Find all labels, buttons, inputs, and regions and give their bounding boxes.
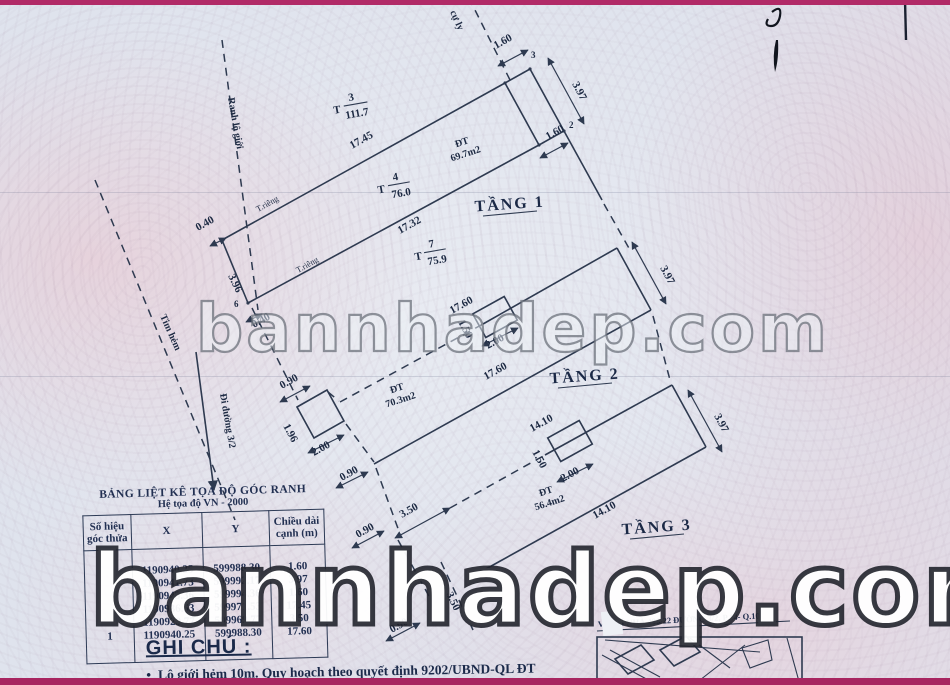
- top-edge-label: cự ly: [447, 9, 465, 32]
- dim-3-96: 3.96: [225, 272, 244, 295]
- floor2-landing-hatch: [297, 390, 344, 438]
- col-header-len: Chiều dài cạnh (m): [269, 509, 325, 546]
- dim-3-50-b: 3.50: [443, 590, 462, 613]
- scanned-survey-drawing: 17.45 17.32 3.96 1.60 1.60 3.97 0.40 0.4…: [0, 0, 950, 685]
- dim-3-50-a: 3.50: [398, 501, 421, 521]
- floor2-dim-lines: [280, 242, 666, 488]
- dim-17-60-top: 17.60: [448, 294, 476, 317]
- scan-edge-stripe-bottom: [0, 678, 950, 685]
- lot-7-label: T 7 75.9: [412, 236, 449, 270]
- dim-3-97-f2: 3.97: [657, 264, 677, 287]
- dim-3-97-f1: 3.97: [569, 80, 589, 103]
- alley-boundary-line: [222, 40, 258, 310]
- floor3-title: TẦNG 3: [621, 515, 692, 539]
- floor2-title: TẦNG 2: [549, 364, 620, 388]
- dim-1-50-f2: 1.50: [455, 318, 475, 341]
- svg-text:3: 3: [347, 91, 355, 104]
- svg-text:76.0: 76.0: [391, 186, 413, 201]
- dim-17-45: 17.45: [348, 129, 376, 152]
- point-6: 6: [234, 299, 239, 309]
- floor2-area-label: ĐT 70.3m2: [381, 379, 417, 410]
- boundary-dashed-lines: [95, 0, 670, 520]
- dim-1-60-top: 1.60: [492, 32, 515, 52]
- svg-text:T: T: [414, 250, 424, 263]
- dim-3-97-f3: 3.97: [711, 412, 731, 435]
- floor1-dim-lines: [210, 50, 584, 322]
- floor2-outline: [297, 248, 651, 534]
- floor3-area-label: ĐT 56.4m2: [530, 482, 566, 513]
- lot-3-label: T 3 111.7: [331, 89, 371, 124]
- dim-17-32: 17.32: [396, 214, 424, 237]
- ink-mark: [767, 0, 906, 72]
- svg-text:7: 7: [428, 238, 436, 251]
- lot-4-label: T 4 76.0: [375, 169, 413, 203]
- wall-label-top: T.riêng: [254, 193, 281, 214]
- floor1-title: TẦNG 1: [474, 192, 545, 216]
- svg-text:75.9: 75.9: [427, 253, 449, 268]
- dim-1-96: 1.96: [280, 422, 300, 445]
- alley-axis-line: [95, 180, 235, 520]
- floor1-outline: [220, 67, 602, 304]
- dim-1-60-bottom: 1.60: [544, 123, 567, 143]
- svg-text:111.7: 111.7: [344, 106, 370, 122]
- dim-0-90-f3a: 0.90: [354, 521, 377, 541]
- dim-0-90-f2a: 0.90: [278, 372, 301, 392]
- dim-2-00-f2a: 2.00: [310, 439, 333, 459]
- dim-1-50-f3: 1.50: [529, 448, 549, 471]
- point-3: 3: [531, 50, 536, 60]
- location-inset-map: VỊ TRÍ NHÀ 488/22 ĐƯỜNG 3/2, P.14- Q.10: [597, 610, 802, 685]
- svg-text:T: T: [332, 104, 342, 117]
- correction-patch: [601, 610, 623, 636]
- alley-axis-label: Tim hẻm: [157, 313, 183, 353]
- to-street-label: Đi đường 3/2: [217, 393, 237, 450]
- col-header-y: Y: [202, 511, 270, 548]
- col-header-x: X: [130, 513, 202, 550]
- dim-2-00-f2b: 2.00: [484, 332, 507, 352]
- floor1-area-label: ĐT 69.7m2: [446, 133, 482, 164]
- dim-2-00-f3: 2.00: [559, 465, 582, 485]
- col-header-id: Số hiệu góc thửa: [83, 515, 132, 551]
- dim-0-90-f2b: 0.90: [338, 464, 361, 484]
- svg-text:4: 4: [392, 171, 400, 184]
- dim-17-60-bottom: 17.60: [482, 360, 510, 383]
- hatch-label: 54a: [531, 98, 542, 108]
- to-street-arrow: [196, 352, 214, 490]
- dim-14-10-bottom: 14.10: [591, 499, 619, 522]
- scan-edge-stripe-top: [0, 0, 950, 5]
- svg-text:T: T: [377, 183, 387, 196]
- notes-block: GHI CHÚ : •Lộ giới hẻm 10m. Quy hoạch th…: [146, 631, 536, 684]
- cell-ids: 1: [84, 550, 135, 664]
- point-2: 2: [569, 120, 574, 130]
- boundary-label: Ranh lộ giới: [225, 97, 245, 151]
- dim-0-40-a: 0.40: [194, 214, 217, 234]
- dim-14-10-top: 14.10: [528, 412, 556, 435]
